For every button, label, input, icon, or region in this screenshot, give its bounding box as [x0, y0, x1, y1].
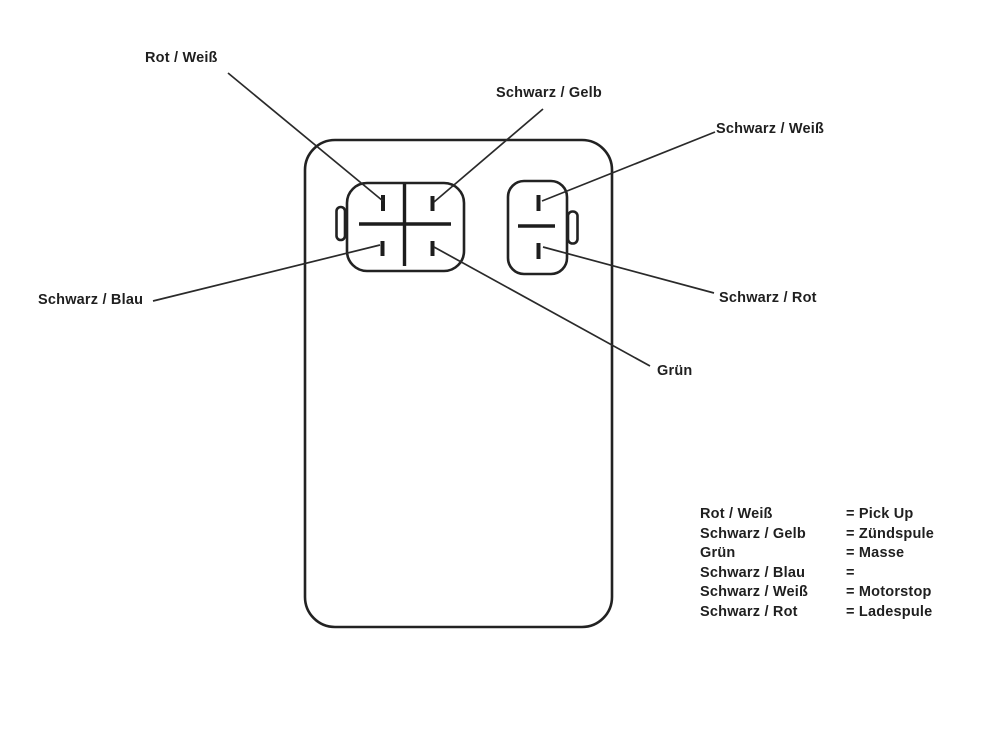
legend-row: Rot / Weiß = Pick Up: [700, 505, 934, 525]
legend-wire-function: =: [846, 564, 855, 584]
legend-wire-function: = Pick Up: [846, 505, 913, 525]
legend-wire-label: Schwarz / Gelb: [700, 525, 846, 545]
callout-schwarz-weiss: Schwarz / Weiß: [716, 121, 824, 137]
callout-schwarz-rot: Schwarz / Rot: [719, 290, 817, 306]
wire-legend: Rot / Weiß = Pick Up Schwarz / Gelb = Zü…: [700, 505, 934, 623]
callout-gruen: Grün: [657, 363, 692, 379]
leader-schwarz-gelb: [434, 109, 543, 202]
legend-row: Schwarz / Rot = Ladespule: [700, 603, 934, 623]
leader-schwarz-weiss: [542, 132, 715, 201]
callout-schwarz-blau: Schwarz / Blau: [38, 292, 143, 308]
legend-wire-label: Schwarz / Blau: [700, 564, 846, 584]
connector-left-tab: [337, 207, 346, 240]
legend-wire-function: = Zündspule: [846, 525, 934, 545]
legend-row: Schwarz / Weiß = Motorstop: [700, 583, 934, 603]
legend-wire-label: Schwarz / Rot: [700, 603, 846, 623]
legend-wire-label: Rot / Weiß: [700, 505, 846, 525]
connector-right-tab: [568, 212, 578, 244]
legend-wire-function: = Motorstop: [846, 583, 932, 603]
callout-schwarz-gelb: Schwarz / Gelb: [496, 85, 602, 101]
leader-schwarz-blau: [153, 245, 380, 301]
leader-gruen: [434, 247, 650, 366]
legend-wire-label: Grün: [700, 544, 846, 564]
legend-wire-label: Schwarz / Weiß: [700, 583, 846, 603]
legend-wire-function: = Masse: [846, 544, 904, 564]
callout-rot-weiss: Rot / Weiß: [145, 50, 218, 66]
legend-wire-function: = Ladespule: [846, 603, 932, 623]
legend-row: Schwarz / Gelb = Zündspule: [700, 525, 934, 545]
legend-row: Grün = Masse: [700, 544, 934, 564]
legend-row: Schwarz / Blau =: [700, 564, 934, 584]
wiring-diagram-page: Rot / Weiß Schwarz / Gelb Schwarz / Weiß…: [0, 0, 1006, 729]
leader-schwarz-rot: [543, 247, 714, 293]
